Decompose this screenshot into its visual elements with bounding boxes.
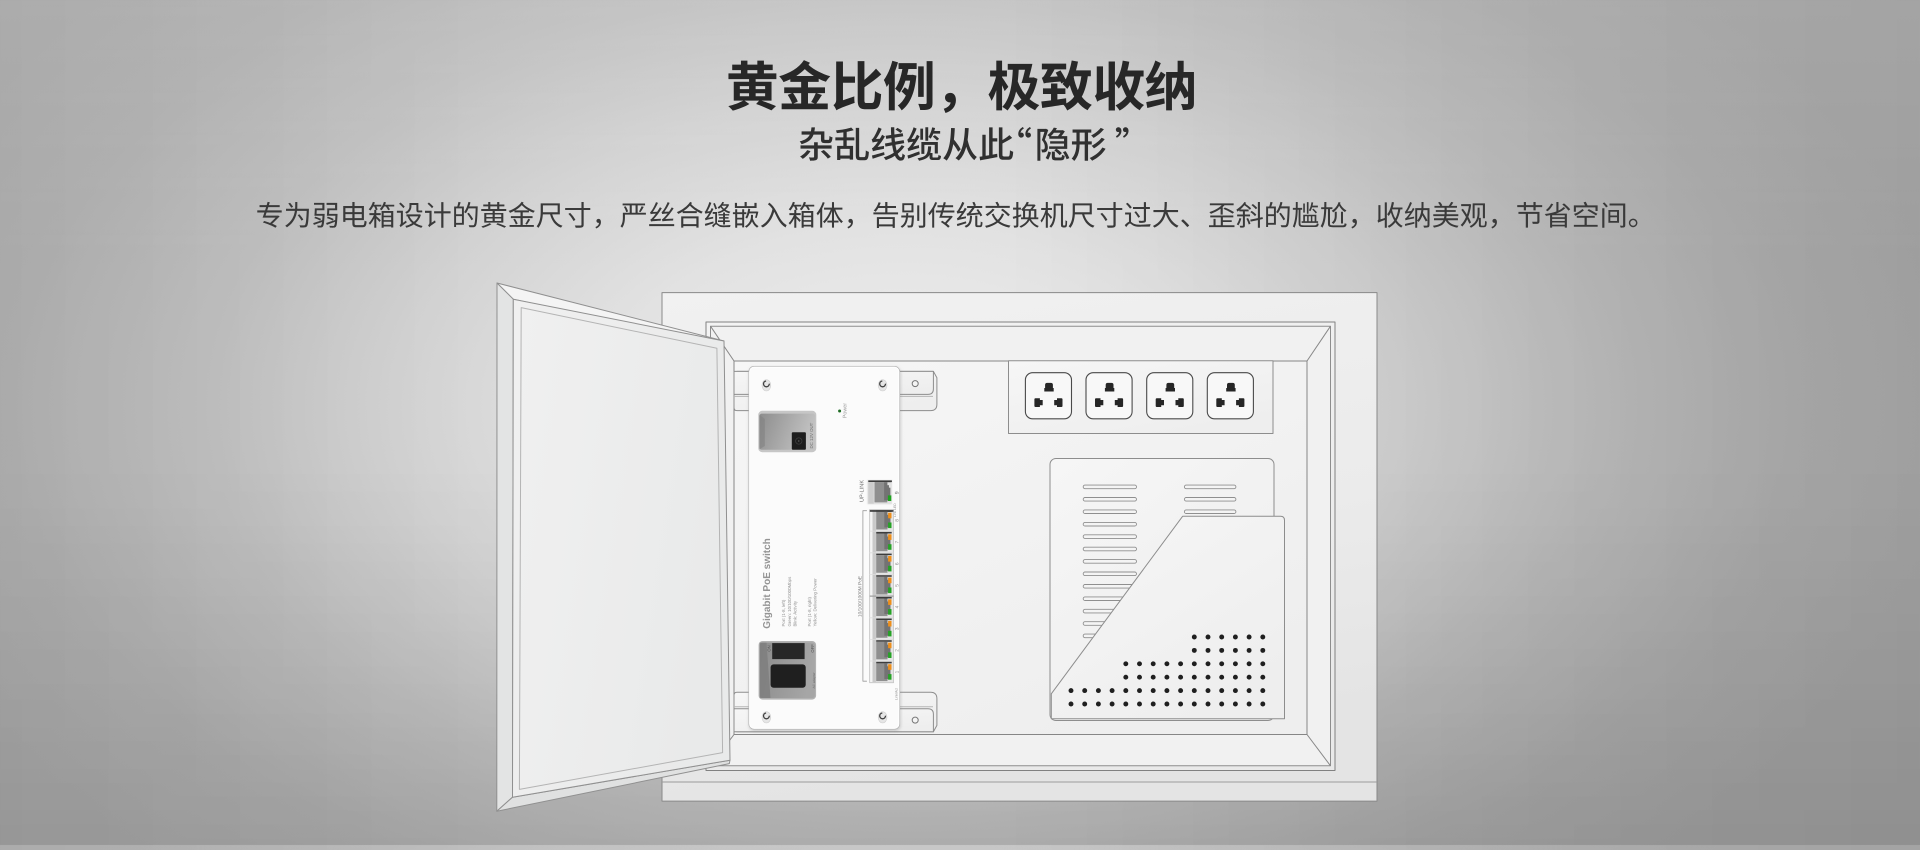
svg-text:Power: Power: [843, 403, 849, 418]
svg-text:8: 8: [894, 519, 900, 522]
svg-text:5: 5: [894, 584, 900, 587]
svg-text:2: 2: [894, 649, 900, 652]
svg-text:1: 1: [894, 670, 900, 673]
svg-text:7: 7: [894, 541, 900, 544]
svg-text:DC 12V OUT: DC 12V OUT: [809, 422, 814, 448]
svg-text:4: 4: [894, 605, 900, 608]
svg-text:3: 3: [894, 627, 900, 630]
svg-text:Gigabit PoE switch: Gigabit PoE switch: [762, 538, 773, 629]
svg-text:Green: 10/100/1000Mbps: Green: 10/100/1000Mbps: [787, 576, 792, 627]
svg-text:Link/Act: Link/Act: [895, 688, 899, 700]
svg-text:9: 9: [894, 491, 900, 494]
svg-text:ON: ON: [766, 645, 771, 651]
svg-text:Port (1-8, left): Port (1-8, left): [781, 599, 786, 626]
svg-text:6: 6: [894, 562, 900, 565]
svg-text:Yellow: Delivering Power: Yellow: Delivering Power: [813, 578, 818, 627]
svg-text:UP-LINK: UP-LINK: [859, 480, 865, 502]
svg-text:AC adapter: AC adapter: [812, 671, 816, 688]
svg-text:Blink: Activity: Blink: Activity: [793, 600, 798, 626]
svg-text:Port (1-8, right): Port (1-8, right): [807, 596, 812, 626]
svg-text:OFF: OFF: [810, 644, 815, 653]
svg-text:10/100/1000M PoE: 10/100/1000M PoE: [858, 576, 864, 617]
